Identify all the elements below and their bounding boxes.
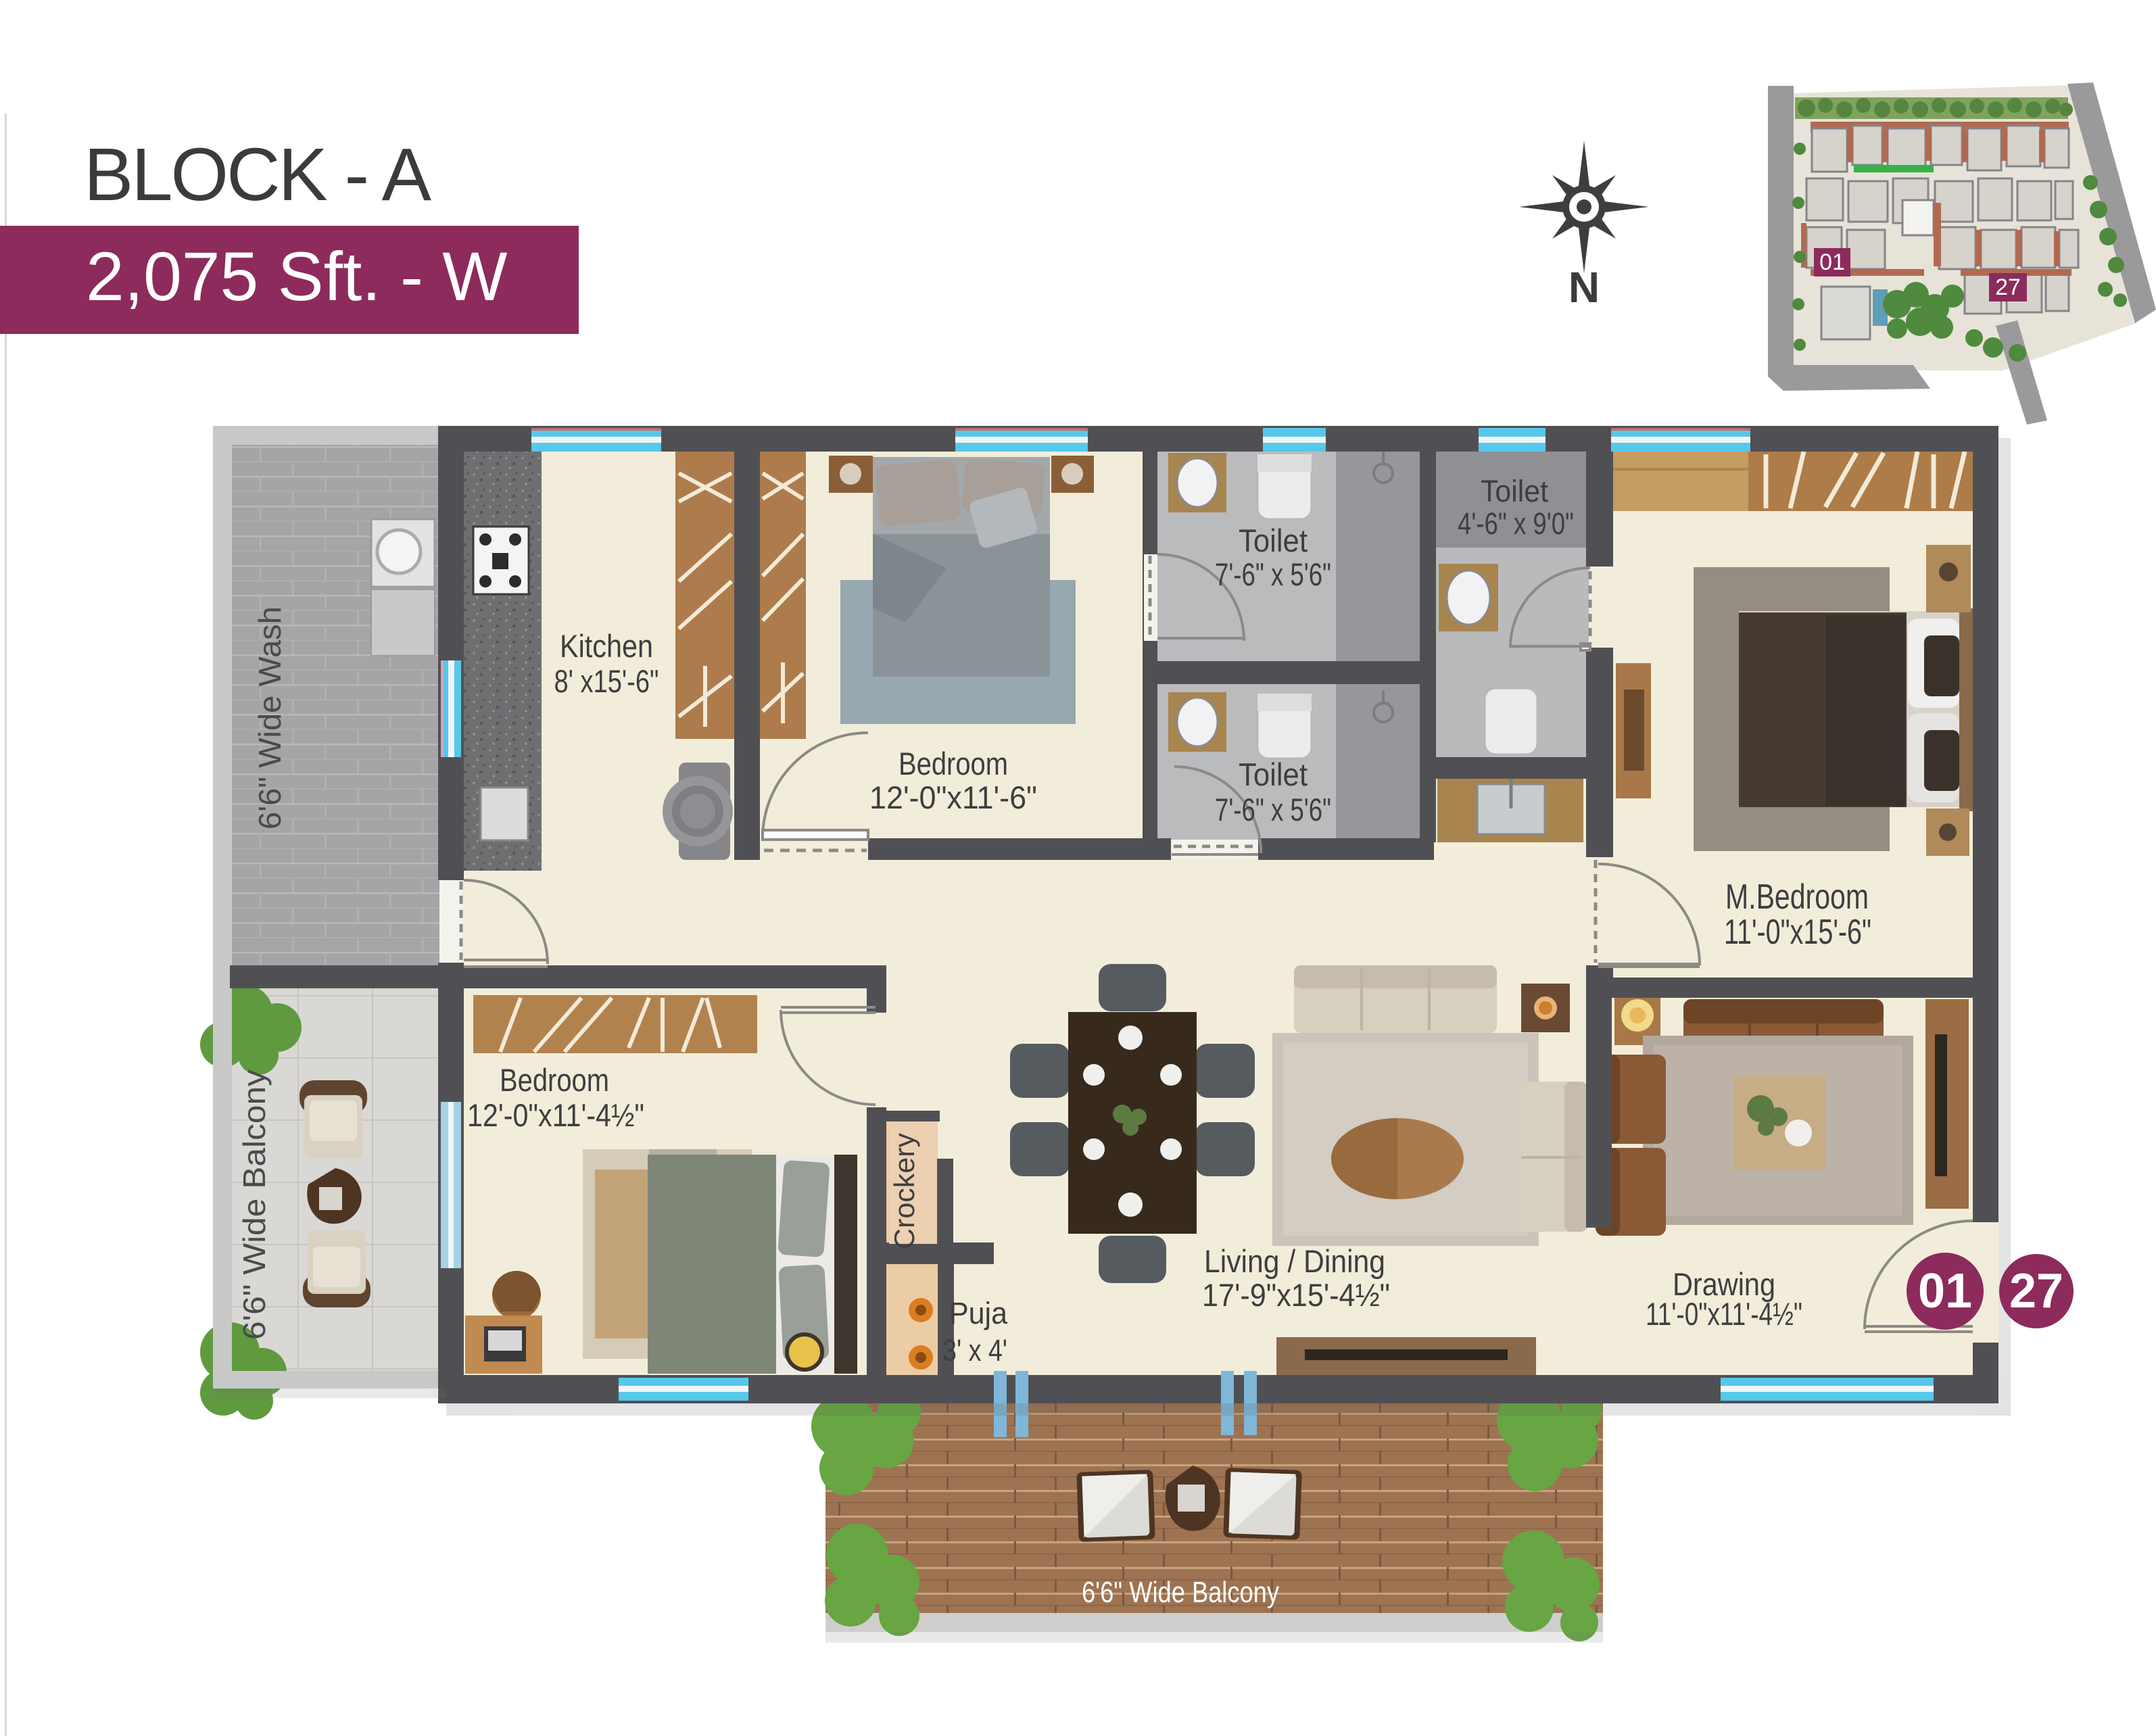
svg-text:01: 01: [1918, 1264, 1972, 1318]
svg-text:17'-9"x15'-4½": 17'-9"x15'-4½": [1202, 1277, 1390, 1313]
svg-text:7'-6" x 5'6": 7'-6" x 5'6": [1215, 792, 1331, 827]
svg-text:Kitchen: Kitchen: [560, 628, 653, 664]
svg-text:Living / Dining: Living / Dining: [1204, 1243, 1385, 1279]
svg-text:12'-0"x11'-6": 12'-0"x11'-6": [869, 779, 1037, 815]
svg-text:6'6" Wide Balcony: 6'6" Wide Balcony: [1082, 1576, 1279, 1609]
svg-text:Bedroom: Bedroom: [500, 1062, 609, 1098]
svg-text:11'-0"x15'-6": 11'-0"x15'-6": [1724, 913, 1871, 952]
svg-text:12'-0"x11'-4½": 12'-0"x11'-4½": [467, 1097, 644, 1133]
svg-text:7'-6" x 5'6": 7'-6" x 5'6": [1215, 556, 1331, 592]
svg-text:27: 27: [2009, 1264, 2063, 1318]
svg-text:Toilet: Toilet: [1239, 756, 1308, 792]
svg-text:6'6" Wide Balcony: 6'6" Wide Balcony: [237, 1069, 272, 1340]
svg-text:11'-0"x11'-4½": 11'-0"x11'-4½": [1646, 1296, 1802, 1332]
svg-text:Bedroom: Bedroom: [899, 746, 1008, 781]
svg-text:6'6" Wide Wash: 6'6" Wide Wash: [252, 606, 287, 829]
svg-text:Puja: Puja: [949, 1296, 1008, 1330]
svg-text:M.Bedroom: M.Bedroom: [1725, 877, 1869, 917]
svg-text:2,075 Sft. - W: 2,075 Sft. - W: [86, 238, 508, 315]
svg-text:4'-6" x 9'0": 4'-6" x 9'0": [1458, 506, 1574, 541]
svg-text:N: N: [1568, 263, 1600, 312]
svg-text:BLOCK - A: BLOCK - A: [84, 133, 432, 216]
svg-text:01: 01: [1819, 249, 1845, 275]
svg-text:8' x15'-6": 8' x15'-6": [554, 663, 659, 699]
svg-text:Toilet: Toilet: [1481, 474, 1548, 508]
svg-text:3' x 4': 3' x 4': [942, 1333, 1007, 1368]
svg-text:Toilet: Toilet: [1239, 523, 1308, 558]
svg-text:Crockery: Crockery: [888, 1133, 920, 1249]
svg-text:27: 27: [1995, 274, 2021, 300]
